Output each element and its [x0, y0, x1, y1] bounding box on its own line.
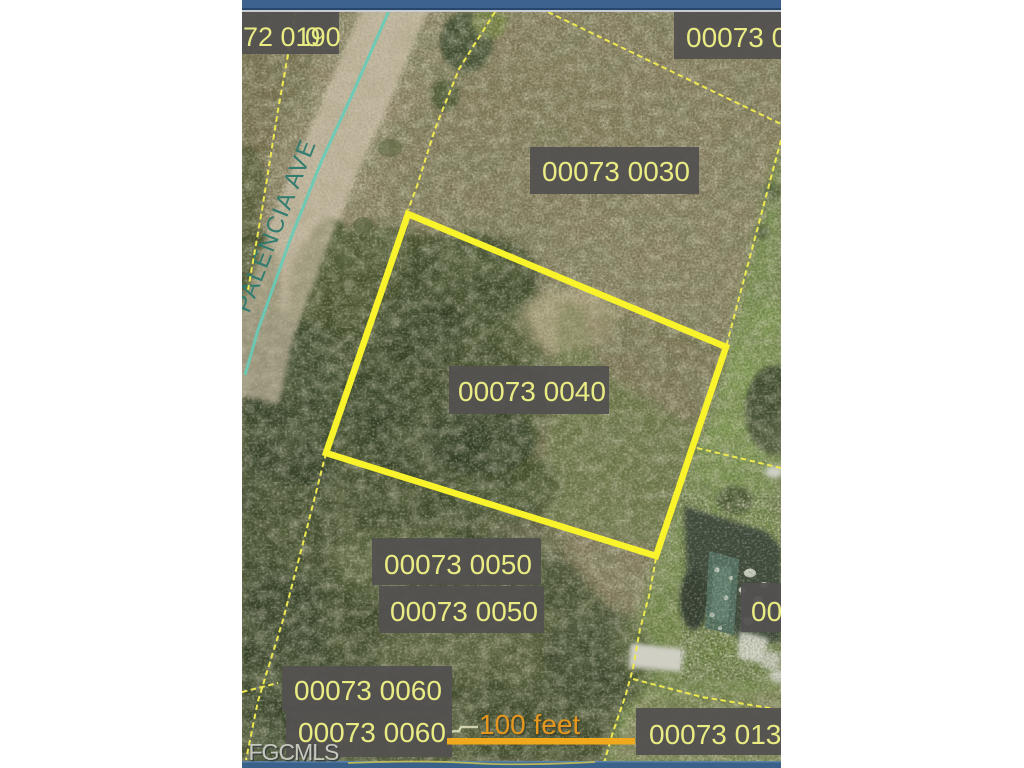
- svg-text:00073 0050: 00073 0050: [384, 549, 532, 580]
- svg-text:000: 000: [751, 596, 798, 627]
- svg-text:00073 0050: 00073 0050: [390, 596, 538, 627]
- svg-text:0: 0: [305, 22, 320, 52]
- svg-text:72 0190: 72 0190: [243, 22, 341, 52]
- svg-text:00073 0130: 00073 0130: [649, 719, 797, 750]
- svg-text:00073 01: 00073 01: [686, 22, 803, 53]
- svg-text:100 feet: 100 feet: [479, 709, 580, 740]
- svg-text:00073 0040: 00073 0040: [458, 376, 606, 407]
- svg-text:00073 0060: 00073 0060: [294, 675, 442, 706]
- svg-text:FGCMLS: FGCMLS: [249, 739, 340, 765]
- svg-text:00073 0030: 00073 0030: [542, 156, 690, 187]
